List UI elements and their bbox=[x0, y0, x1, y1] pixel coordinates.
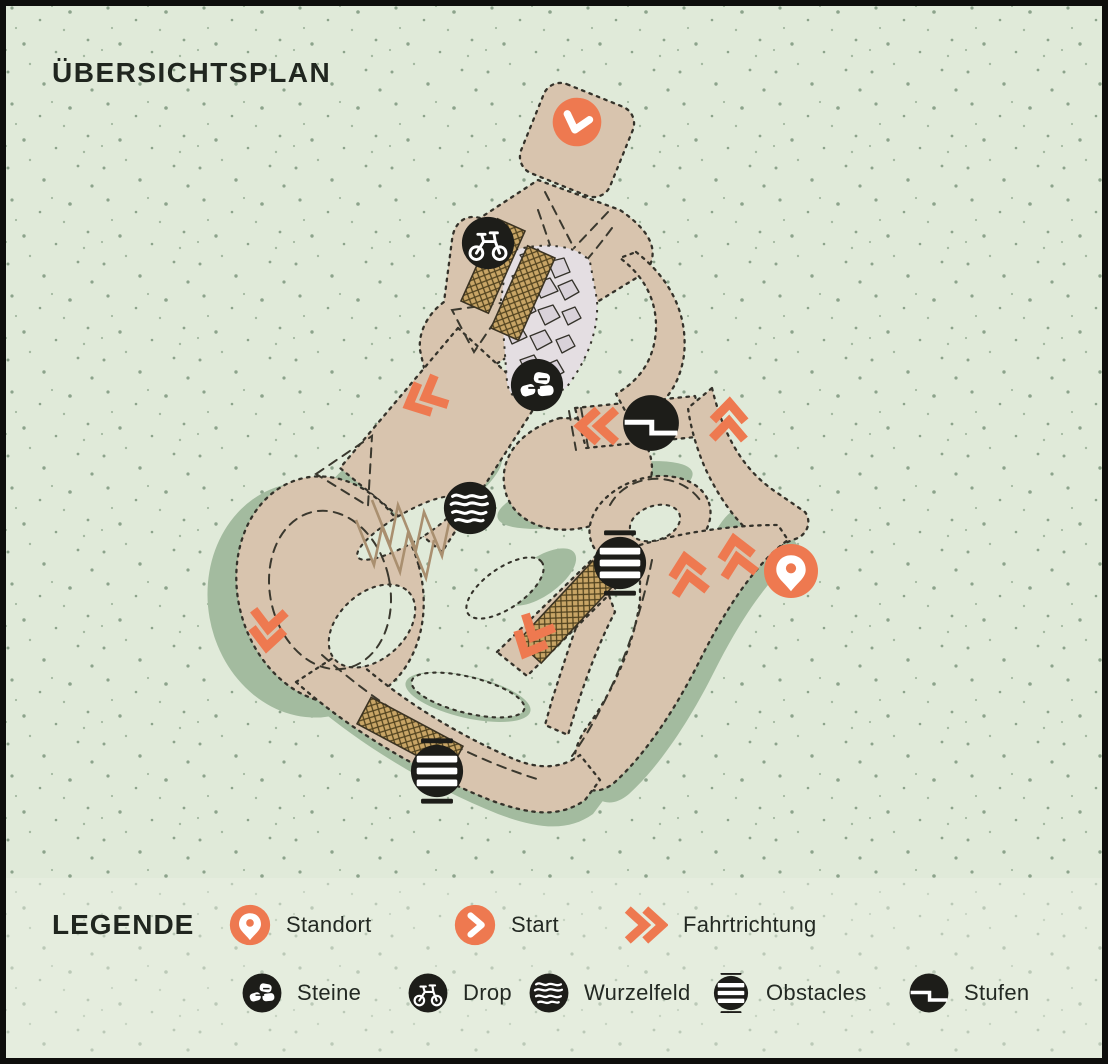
steps-icon bbox=[909, 973, 949, 1013]
map-area bbox=[6, 6, 1102, 1058]
plan-frame: ÜBERSICHTSPLAN LEGENDE Standort Start Fa… bbox=[0, 0, 1108, 1064]
page-title: ÜBERSICHTSPLAN bbox=[52, 57, 331, 89]
legend-item-start: Start bbox=[454, 904, 559, 946]
legend-label: Start bbox=[511, 912, 559, 938]
legend-label: Fahrtrichtung bbox=[683, 912, 817, 938]
start-circle-icon bbox=[454, 904, 496, 946]
steps-icon bbox=[623, 395, 679, 451]
legend-item-wurzelfeld: Wurzelfeld bbox=[529, 972, 691, 1014]
obstacles-icon bbox=[711, 973, 751, 1013]
legend-item-drop: Drop bbox=[408, 972, 512, 1014]
rootfield-icon bbox=[529, 973, 569, 1013]
rootfield-icon bbox=[444, 482, 496, 534]
legend-label: Obstacles bbox=[766, 980, 867, 1006]
legend-item-fahrtrichtung: Fahrtrichtung bbox=[624, 904, 817, 946]
location-pin-icon bbox=[764, 544, 818, 598]
legend-label: Standort bbox=[286, 912, 372, 938]
location-pin-icon bbox=[229, 904, 271, 946]
legend-label: Steine bbox=[297, 980, 361, 1006]
legend-item-stufen: Stufen bbox=[909, 972, 1029, 1014]
legend-item-obstacles: Obstacles bbox=[711, 972, 867, 1014]
legend-item-steine: Steine bbox=[242, 972, 361, 1014]
stones-icon bbox=[242, 973, 282, 1013]
legend-label: Stufen bbox=[964, 980, 1029, 1006]
direction-chevrons-icon bbox=[624, 904, 668, 946]
legend-label: Wurzelfeld bbox=[584, 980, 691, 1006]
legend-label: Drop bbox=[463, 980, 512, 1006]
stones-icon bbox=[511, 359, 563, 411]
legend-heading: LEGENDE bbox=[52, 904, 194, 946]
drop-bike-icon bbox=[408, 973, 448, 1013]
trail-map-canvas bbox=[6, 6, 1102, 1058]
drop-bike-icon bbox=[462, 217, 514, 269]
legend-item-standort: Standort bbox=[229, 904, 372, 946]
